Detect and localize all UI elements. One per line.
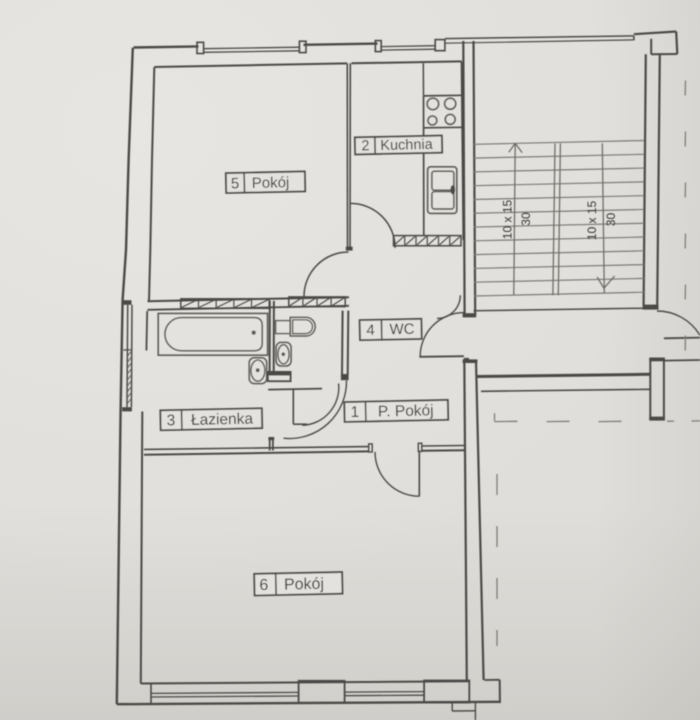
svg-text:5: 5 [231, 175, 240, 192]
svg-text:30: 30 [604, 213, 618, 227]
svg-text:Kuchnia: Kuchnia [380, 137, 434, 154]
svg-text:Pokój: Pokój [284, 576, 324, 594]
svg-text:2: 2 [361, 138, 369, 154]
svg-text:30: 30 [519, 212, 533, 226]
svg-text:10 x 15: 10 x 15 [585, 200, 599, 240]
svg-text:Pokój: Pokój [252, 174, 290, 192]
svg-text:10 x 15: 10 x 15 [500, 199, 514, 239]
svg-text:Łazienka: Łazienka [191, 411, 254, 429]
svg-text:P. Pokój: P. Pokój [378, 402, 434, 420]
svg-text:WC: WC [389, 321, 415, 339]
svg-text:3: 3 [167, 412, 176, 429]
svg-text:1: 1 [350, 404, 359, 421]
svg-text:6: 6 [259, 577, 268, 594]
svg-text:4: 4 [366, 322, 375, 339]
